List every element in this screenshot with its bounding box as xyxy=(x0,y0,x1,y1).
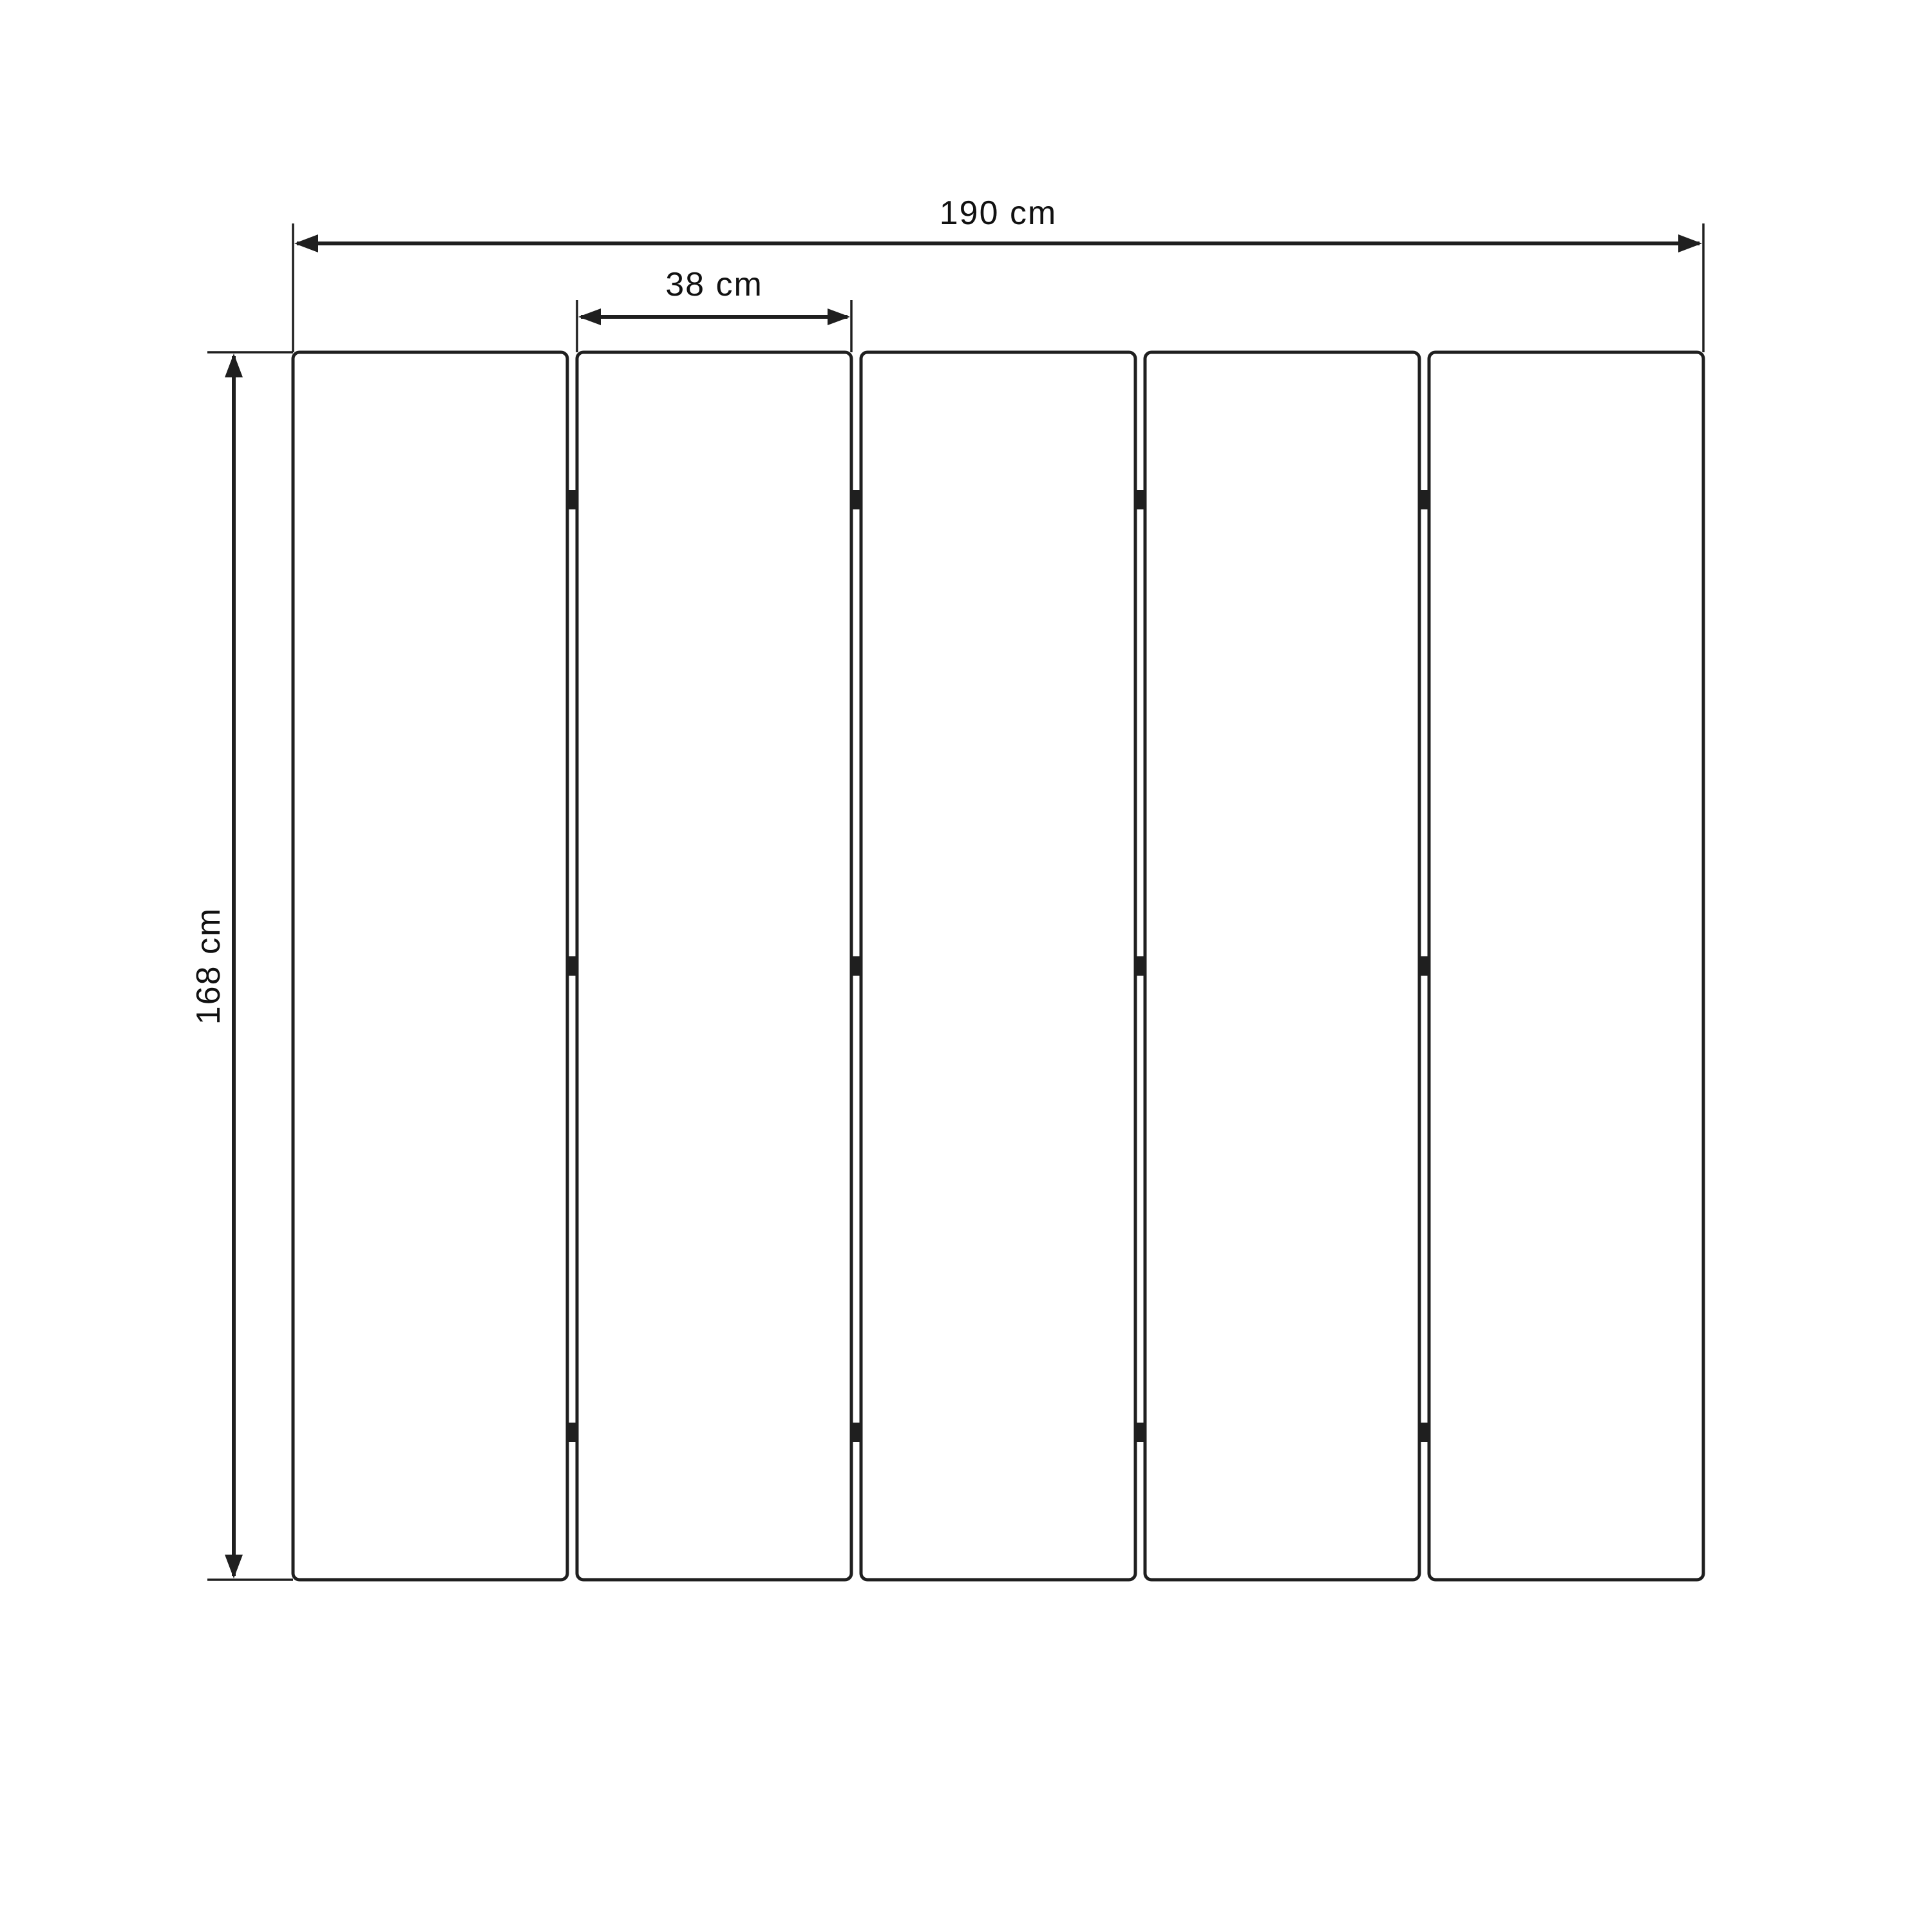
hinge xyxy=(1419,1423,1430,1442)
hinge xyxy=(567,490,578,509)
screen-panel xyxy=(577,352,851,1580)
arrowhead-right-icon xyxy=(1678,234,1702,252)
hinge xyxy=(851,1423,862,1442)
screen-panel xyxy=(1145,352,1419,1580)
hinge xyxy=(567,1423,578,1442)
arrowhead-right-icon xyxy=(828,308,850,325)
screen-panel xyxy=(293,352,567,1580)
panels-group xyxy=(293,352,1703,1580)
hinge xyxy=(1135,956,1146,976)
hinge xyxy=(851,956,862,976)
arrowhead-down-icon xyxy=(225,1555,243,1578)
panel-width-label: 38 cm xyxy=(665,266,763,303)
arrowhead-left-icon xyxy=(578,308,601,325)
hinge xyxy=(567,956,578,976)
dimension-total-width: 190 cm xyxy=(293,194,1703,352)
screen-panel xyxy=(1429,352,1703,1580)
arrowhead-left-icon xyxy=(294,234,318,252)
total-width-label: 190 cm xyxy=(940,194,1057,232)
height-label: 168 cm xyxy=(190,907,227,1025)
arrowhead-up-icon xyxy=(225,354,243,377)
hinge xyxy=(1419,490,1430,509)
hinge xyxy=(851,490,862,509)
hinge xyxy=(1135,1423,1146,1442)
hinge xyxy=(1135,490,1146,509)
dimension-panel-width: 38 cm xyxy=(577,266,851,352)
folding-screen-diagram: 190 cm 38 cm 168 cm xyxy=(0,0,1932,1932)
screen-panel xyxy=(861,352,1135,1580)
dimension-height: 168 cm xyxy=(190,352,293,1580)
dimension-drawing-canvas: 190 cm 38 cm 168 cm xyxy=(0,0,1932,1932)
hinge xyxy=(1419,956,1430,976)
